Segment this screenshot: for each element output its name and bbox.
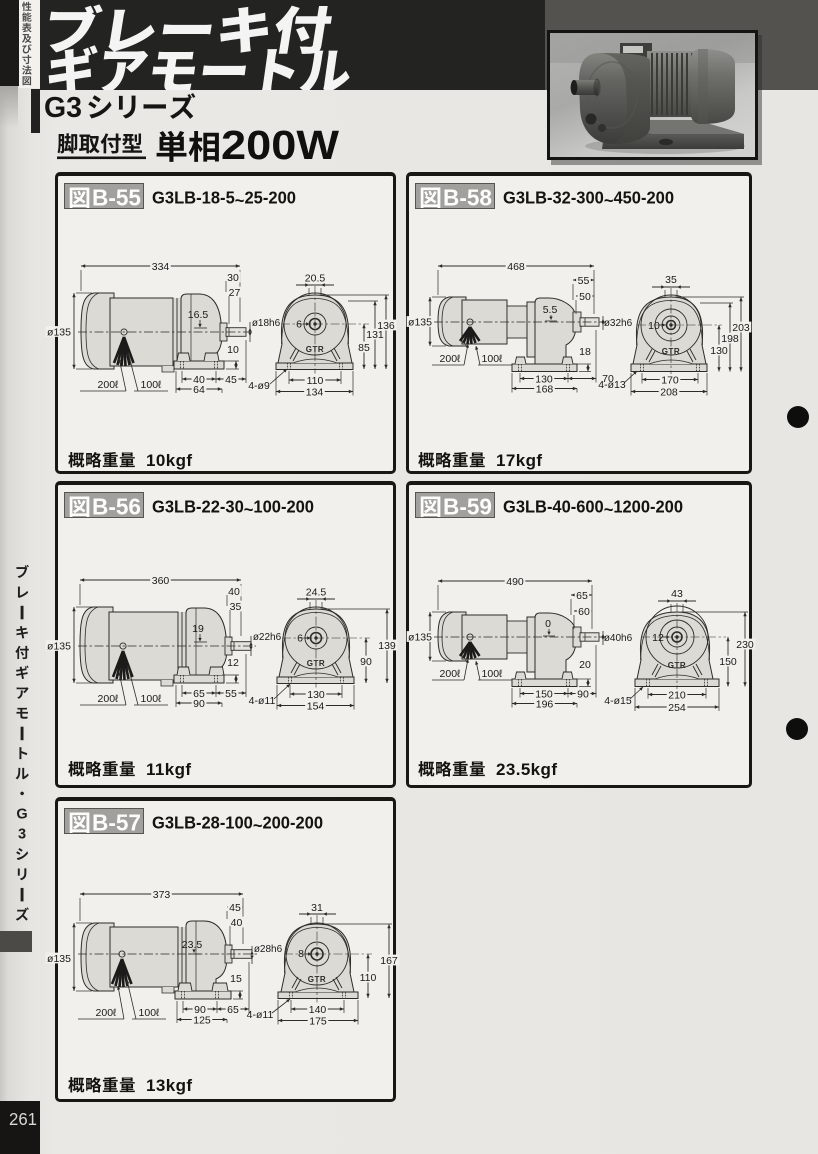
svg-text:ø22h6: ø22h6 <box>253 632 282 643</box>
svg-text:100ℓ: 100ℓ <box>482 668 504 680</box>
svg-text:200ℓ: 200ℓ <box>440 668 462 680</box>
svg-text:4-ø15: 4-ø15 <box>604 695 632 707</box>
svg-text:490: 490 <box>506 576 524 588</box>
svg-text:200ℓ: 200ℓ <box>98 379 120 391</box>
svg-text:200ℓ: 200ℓ <box>98 693 120 705</box>
svg-text:55: 55 <box>578 275 590 287</box>
svg-text:100ℓ: 100ℓ <box>139 1007 161 1019</box>
svg-text:200ℓ: 200ℓ <box>96 1007 118 1019</box>
svg-text:175: 175 <box>309 1015 327 1027</box>
svg-text:196: 196 <box>536 698 554 710</box>
svg-text:20: 20 <box>579 659 591 671</box>
svg-text:167: 167 <box>380 955 398 967</box>
svg-text:200ℓ: 200ℓ <box>440 353 462 365</box>
svg-text:90: 90 <box>193 698 205 710</box>
svg-text:B-57: B-57 <box>92 810 141 836</box>
svg-text:B-59: B-59 <box>443 494 492 520</box>
svg-text:G3LB-32-300~450-200: G3LB-32-300~450-200 <box>503 188 674 211</box>
svg-text:55: 55 <box>225 688 237 700</box>
svg-text:8: 8 <box>298 948 304 960</box>
svg-text:100ℓ: 100ℓ <box>482 353 504 365</box>
svg-text:13kgf: 13kgf <box>146 1076 192 1095</box>
svg-text:ø135: ø135 <box>47 640 71 652</box>
svg-text:254: 254 <box>668 702 686 714</box>
svg-text:B-55: B-55 <box>92 185 141 211</box>
svg-text:140: 140 <box>309 1004 327 1016</box>
svg-text:23.5kgf: 23.5kgf <box>496 760 557 779</box>
svg-text:4-ø11: 4-ø11 <box>247 1009 274 1021</box>
svg-text:G3LB-28-100~200-200: G3LB-28-100~200-200 <box>152 813 323 836</box>
svg-text:ø32h6: ø32h6 <box>604 318 633 329</box>
svg-text:ø135: ø135 <box>47 953 71 965</box>
svg-text:134: 134 <box>306 386 324 398</box>
svg-text:10kgf: 10kgf <box>146 451 192 470</box>
svg-text:65: 65 <box>576 590 588 602</box>
svg-text:19: 19 <box>192 623 204 635</box>
svg-text:130: 130 <box>307 689 325 701</box>
svg-text:125: 125 <box>193 1014 211 1026</box>
svg-text:35: 35 <box>230 601 242 613</box>
svg-text:0: 0 <box>545 618 551 630</box>
svg-text:230: 230 <box>736 639 754 651</box>
svg-text:154: 154 <box>307 700 325 712</box>
svg-text:373: 373 <box>153 889 171 901</box>
svg-text:60: 60 <box>578 606 590 618</box>
svg-text:B-56: B-56 <box>92 494 141 520</box>
svg-text:90: 90 <box>360 656 372 668</box>
svg-text:261: 261 <box>9 1109 37 1129</box>
svg-text:B-58: B-58 <box>443 185 492 211</box>
svg-text:110: 110 <box>360 972 377 984</box>
svg-text:468: 468 <box>507 261 525 273</box>
svg-text:G3LB-40-600~1200-200: G3LB-40-600~1200-200 <box>503 497 683 520</box>
svg-text:24.5: 24.5 <box>306 587 327 599</box>
svg-text:136: 136 <box>377 320 395 332</box>
svg-text:15: 15 <box>230 973 242 985</box>
svg-text:130: 130 <box>710 345 728 357</box>
svg-text:210: 210 <box>668 689 686 701</box>
svg-text:45: 45 <box>225 374 237 386</box>
svg-text:168: 168 <box>536 383 554 395</box>
svg-text:27: 27 <box>229 287 241 299</box>
svg-text:203: 203 <box>732 322 750 334</box>
svg-text:31: 31 <box>311 902 323 914</box>
svg-text:G3LB-22-30~100-200: G3LB-22-30~100-200 <box>152 497 314 520</box>
svg-text:23.5: 23.5 <box>182 939 203 951</box>
svg-text:90: 90 <box>577 688 589 700</box>
svg-text:16.5: 16.5 <box>188 309 209 321</box>
svg-text:139: 139 <box>378 640 396 652</box>
svg-text:30: 30 <box>227 272 239 284</box>
svg-text:110: 110 <box>307 375 324 387</box>
svg-text:ø135: ø135 <box>408 631 432 643</box>
svg-text:40: 40 <box>231 917 243 929</box>
svg-text:35: 35 <box>665 274 677 286</box>
svg-text:4-ø13: 4-ø13 <box>598 379 626 391</box>
svg-text:ø40h6: ø40h6 <box>604 633 633 644</box>
svg-text:ø18h6: ø18h6 <box>252 318 281 329</box>
svg-text:5.5: 5.5 <box>543 304 558 316</box>
svg-text:64: 64 <box>193 384 205 396</box>
svg-text:200W: 200W <box>221 122 339 168</box>
svg-text:6: 6 <box>297 633 303 645</box>
svg-text:65: 65 <box>227 1004 239 1016</box>
svg-text:85: 85 <box>358 342 370 354</box>
svg-text:40: 40 <box>228 586 240 598</box>
svg-text:ø28h6: ø28h6 <box>254 944 283 955</box>
svg-text:360: 360 <box>152 575 170 587</box>
svg-text:18: 18 <box>579 346 591 358</box>
svg-text:G3LB-18-5~25-200: G3LB-18-5~25-200 <box>152 188 296 211</box>
svg-text:50: 50 <box>579 291 591 303</box>
svg-text:ø135: ø135 <box>47 326 71 338</box>
svg-text:334: 334 <box>152 261 170 273</box>
svg-text:12: 12 <box>227 657 239 669</box>
svg-text:4-ø9: 4-ø9 <box>248 380 270 392</box>
svg-text:170: 170 <box>661 374 679 386</box>
svg-text:43: 43 <box>671 588 683 600</box>
svg-text:6: 6 <box>296 319 302 331</box>
svg-text:150: 150 <box>719 656 737 668</box>
svg-text:ø135: ø135 <box>408 316 432 328</box>
svg-text:4-ø11: 4-ø11 <box>249 695 276 707</box>
svg-text:20.5: 20.5 <box>305 273 326 285</box>
svg-text:45: 45 <box>229 902 241 914</box>
svg-text:198: 198 <box>721 333 739 345</box>
svg-text:12: 12 <box>652 632 664 644</box>
svg-text:100ℓ: 100ℓ <box>141 693 163 705</box>
svg-text:G3: G3 <box>44 92 82 124</box>
svg-text:3: 3 <box>18 826 26 842</box>
svg-text:100ℓ: 100ℓ <box>141 379 163 391</box>
svg-text:10: 10 <box>227 344 239 356</box>
svg-text:10: 10 <box>648 320 660 332</box>
svg-text:17kgf: 17kgf <box>496 451 542 470</box>
svg-text:208: 208 <box>660 386 678 398</box>
svg-text:G: G <box>16 806 27 822</box>
svg-text:11kgf: 11kgf <box>146 760 191 779</box>
